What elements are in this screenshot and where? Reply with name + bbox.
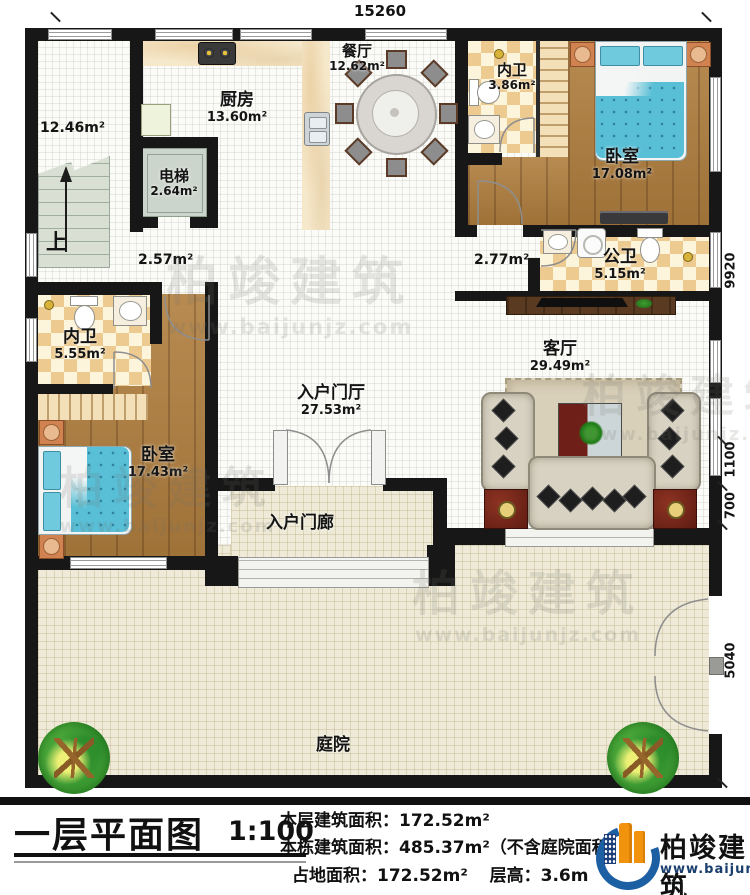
room-label-bedroom-left: 卧室17.43m²	[108, 446, 208, 480]
bed	[595, 41, 687, 161]
wall-right-gate-upper	[709, 545, 722, 596]
sink-icon	[543, 230, 572, 254]
window-right-living-1	[710, 340, 721, 383]
window-left-stair	[26, 233, 37, 277]
plant	[636, 299, 652, 308]
land-area-line: 占地面积：172.52m² 层高：3.6m	[292, 861, 588, 886]
building-area-value: 485.37m²（不含庭院面积）	[399, 838, 626, 858]
window-bedroom-left-south	[70, 557, 167, 569]
floor-area-label: 本层建筑面积：	[280, 811, 399, 831]
wall-left	[25, 28, 38, 788]
height-value: 3.6m	[541, 866, 589, 886]
title-divider	[0, 797, 750, 805]
dimension-tick	[701, 12, 712, 23]
plan-title: 一层平面图	[14, 806, 204, 858]
window-top-dining-2	[365, 29, 447, 40]
light-pull-icon	[683, 252, 693, 262]
nightstand	[39, 534, 64, 559]
wall-porch-stub-right	[427, 545, 455, 586]
stove	[198, 42, 236, 65]
wall-bath-left-bottom	[38, 384, 113, 394]
room-label-porch: 入户门廊	[230, 514, 370, 534]
window-right-public-bath	[710, 232, 721, 288]
wall-bath-left-right	[150, 294, 162, 344]
elevator-wall-top	[130, 137, 218, 148]
dimension-right-5040: 5040	[724, 631, 739, 691]
floor-area-value: 172.52m²	[399, 811, 490, 831]
sink-icon	[113, 296, 147, 326]
dining-chair	[335, 103, 354, 124]
dining-chair	[386, 158, 407, 177]
floor-area-line: 本层建筑面积：172.52m²	[280, 806, 490, 831]
kitchen-sink	[304, 112, 330, 146]
window-top-stair	[48, 29, 112, 40]
courtyard-gate-post	[709, 657, 724, 675]
annotation-stairs-up: 上	[46, 226, 67, 256]
title-underline-thin	[14, 861, 306, 863]
room-label-elevator: 电梯2.64m²	[134, 168, 214, 199]
wall-bath-top-bottom	[455, 153, 502, 165]
logo-brand: 柏竣建筑	[660, 826, 750, 895]
end-table	[484, 489, 528, 529]
nightstand	[686, 42, 711, 67]
height-label: 层高：	[490, 866, 541, 886]
dining-table-center	[390, 108, 399, 117]
room-label-living: 客厅29.49m²	[500, 340, 620, 374]
nightstand	[39, 420, 64, 445]
bedroom-top-closet	[540, 40, 568, 157]
end-table	[653, 489, 697, 529]
light-pull-icon	[44, 300, 54, 310]
window-right-bedroom	[710, 77, 721, 172]
bedroom-left-closet	[38, 394, 148, 420]
title-underline-thick	[14, 853, 306, 857]
annotation-hall-area-right: 2.77m²	[474, 252, 529, 268]
room-label-bedroom-top: 卧室17.08m²	[572, 148, 672, 182]
dimension-tick	[50, 12, 61, 23]
room-label-kitchen: 厨房13.60m²	[187, 91, 287, 125]
wall-right-gate-lower	[709, 734, 722, 775]
wall-hall-porch-left	[218, 478, 275, 491]
nightstand	[570, 42, 595, 67]
land-area-label: 占地面积：	[292, 866, 377, 886]
sink-icon	[468, 115, 500, 144]
wall-porch-stub-left	[205, 556, 238, 586]
land-area-value: 172.52m²	[377, 866, 468, 886]
logo-url: www.baijunjz.com	[660, 862, 750, 877]
elevator-wall-bottom-right	[190, 217, 218, 228]
wall-living-bottom-left	[443, 528, 505, 545]
entry-door-leaf	[371, 430, 386, 485]
dining-chair	[439, 103, 458, 124]
window-top-dining-1	[240, 29, 312, 40]
tree	[607, 722, 679, 794]
room-label-courtyard: 庭院	[283, 736, 383, 756]
annotation-hall-area-left: 2.57m²	[138, 252, 193, 268]
baijun-logo-icon	[595, 818, 657, 884]
dimension-right-9920: 9920	[724, 241, 739, 301]
window-top-kitchen	[155, 29, 233, 40]
bedroom-tv-stand	[600, 211, 668, 224]
annotation-stair-area: 12.46m²	[40, 120, 105, 136]
wall-bedroom-top-bottom-left	[465, 225, 477, 237]
room-label-entry-hall: 入户门厅27.53m²	[271, 384, 391, 418]
living-courtyard-steps	[505, 528, 654, 547]
coffee-table	[558, 403, 622, 463]
dimension-top: 15260	[330, 2, 430, 20]
room-label-bath-top: 内卫3.86m²	[467, 62, 557, 93]
tv	[536, 298, 628, 307]
wall-public-bath-left	[528, 258, 540, 294]
light-pull-icon	[494, 49, 504, 59]
building-area-label: 本栋建筑面积：	[280, 838, 399, 858]
building-area-line: 本栋建筑面积：485.37m²（不含庭院面积）	[280, 833, 626, 858]
entry-door-leaf	[273, 430, 288, 485]
room-label-dining: 餐厅12.62m²	[307, 43, 407, 74]
bedroom-top-floor-entry	[468, 157, 568, 225]
floor-plan-canvas: 厨房13.60m² 餐厅12.62m² 内卫3.86m² 卧室17.08m² 电…	[0, 0, 750, 895]
wall-stair-kitchen	[130, 40, 143, 232]
room-label-bath-left: 内卫5.55m²	[35, 328, 125, 362]
wall-bath-closet-divider	[536, 40, 540, 157]
room-label-public-bath: 公卫5.15m²	[570, 248, 670, 282]
porch-steps	[238, 557, 429, 588]
wall-living-bottom-right	[652, 528, 722, 545]
tree	[38, 722, 110, 794]
wall-under-stair-left	[25, 282, 162, 295]
refrigerator	[141, 104, 171, 136]
